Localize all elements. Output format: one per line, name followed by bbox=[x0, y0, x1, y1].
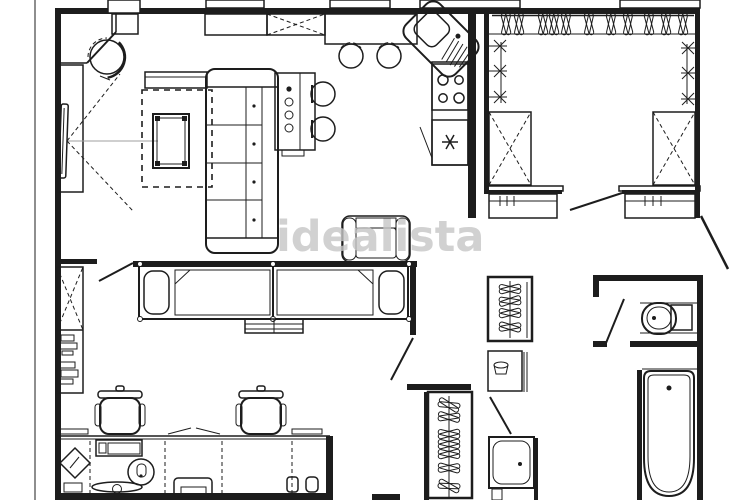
entry-door bbox=[701, 216, 728, 269]
washbasin-cabinet bbox=[488, 351, 522, 391]
round-armchair bbox=[88, 38, 125, 80]
shower-tray bbox=[489, 437, 534, 500]
cooktop-4-burners bbox=[432, 64, 468, 110]
wall-hooks bbox=[489, 40, 699, 105]
closet-door bbox=[570, 193, 622, 210]
toilet-door bbox=[606, 299, 624, 343]
single-bed-right bbox=[273, 266, 408, 319]
bar-stool bbox=[339, 43, 363, 68]
coffee-table bbox=[153, 114, 189, 168]
sectional-sofa bbox=[206, 69, 278, 253]
bar-stool bbox=[377, 43, 401, 68]
photo-frame bbox=[60, 448, 90, 478]
snowflake-icon bbox=[442, 135, 458, 149]
coat-closet bbox=[488, 277, 532, 341]
pen-cup bbox=[306, 477, 318, 492]
single-bed-left bbox=[139, 266, 273, 319]
floor-plan-page: idealista bbox=[0, 0, 750, 500]
freezer bbox=[432, 120, 468, 165]
keyboard bbox=[92, 482, 142, 494]
bathroom bbox=[489, 303, 697, 500]
idealista-watermark: idealista bbox=[276, 216, 484, 259]
tall-cabinet-x bbox=[267, 14, 325, 35]
kitchen-door bbox=[420, 127, 432, 158]
tv-sight-lines bbox=[67, 74, 158, 211]
bathtub bbox=[644, 371, 694, 496]
home-office bbox=[57, 267, 330, 497]
pillow bbox=[379, 271, 404, 314]
media-console bbox=[145, 72, 207, 88]
sleeping-area bbox=[138, 262, 412, 334]
walk-in-closet bbox=[486, 13, 700, 218]
office-chair bbox=[95, 386, 145, 434]
desk-tray bbox=[64, 483, 82, 492]
monitor bbox=[96, 440, 142, 456]
toilet bbox=[640, 303, 697, 334]
wall-cabinet bbox=[205, 14, 267, 35]
office-chair bbox=[236, 386, 286, 434]
sleeping-area-door-right bbox=[391, 338, 413, 380]
sleeping-area-door-left bbox=[99, 263, 133, 281]
tall-wardrobe bbox=[428, 392, 472, 498]
shoe-drawers-right bbox=[619, 186, 700, 218]
oven-column bbox=[275, 73, 315, 156]
dresser-x-right bbox=[653, 112, 695, 185]
dresser-x-left bbox=[489, 112, 531, 185]
pillow bbox=[144, 271, 169, 314]
shower-door bbox=[490, 397, 511, 434]
storage-bench bbox=[245, 319, 303, 333]
shoe-drawers-left bbox=[486, 186, 563, 218]
kitchen bbox=[205, 0, 483, 165]
desk-lamp bbox=[128, 459, 154, 485]
work-desk bbox=[57, 428, 330, 495]
